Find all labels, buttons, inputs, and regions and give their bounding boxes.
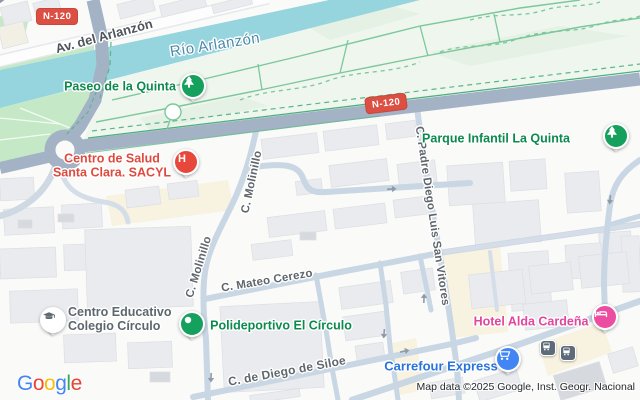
centro-educativo-pin[interactable] xyxy=(40,307,66,339)
poi-label-polideportivo[interactable]: Polideportivo El Círculo xyxy=(210,319,352,333)
poi-label-paseo-quinta[interactable]: Paseo de la Quinta xyxy=(64,80,176,94)
poi-label-parque-infantil[interactable]: Parque Infantil La Quinta xyxy=(422,132,570,146)
graduation-cap-icon xyxy=(42,309,56,323)
bed-icon xyxy=(594,306,608,320)
google-logo[interactable]: Google xyxy=(17,372,82,396)
bus-glyph-icon xyxy=(561,346,572,357)
poi-label-hotel-alda[interactable]: Hotel Alda Cardeña xyxy=(474,315,589,329)
poi-label-centro-salud[interactable]: Centro de Salud Santa Clara. SACYL xyxy=(53,153,171,180)
logo-letter: g xyxy=(55,372,66,395)
bus-glyph-icon xyxy=(541,341,552,352)
logo-letter: o xyxy=(44,372,55,395)
bus-stop-icon[interactable] xyxy=(540,340,556,356)
logo-letter: o xyxy=(33,372,44,395)
parque-infantil-pin[interactable] xyxy=(603,123,629,155)
svg-text:H: H xyxy=(178,153,186,165)
tree-icon xyxy=(605,125,619,139)
logo-letter: e xyxy=(71,372,82,395)
logo-letter: G xyxy=(17,372,33,395)
route-badge-n120-nw: N-120 xyxy=(37,9,77,24)
poi-label-centro-educativo[interactable]: Centro Educativo Colegio Círculo xyxy=(68,306,172,333)
hospital-h-icon: H xyxy=(175,151,189,165)
map-viewport[interactable]: N-120 N-120 Av. del Arlanzón Río Arlanzó… xyxy=(0,0,640,400)
poi-label-line: Colegio Círculo xyxy=(68,319,160,333)
centro-salud-pin[interactable]: H xyxy=(173,149,199,181)
hotel-alda-pin[interactable] xyxy=(592,304,618,336)
poi-label-carrefour[interactable]: Carrefour Express xyxy=(384,359,497,373)
paseo-quinta-pin[interactable] xyxy=(180,73,206,105)
bus-stop-icon[interactable] xyxy=(560,345,576,361)
poi-label-line: Centro de Salud xyxy=(64,152,160,166)
polideportivo-pin[interactable] xyxy=(179,311,205,343)
dot-icon xyxy=(181,313,195,327)
map-attribution: Map data ©2025 Google, Inst. Geogr. Naci… xyxy=(417,381,635,393)
poi-label-line: Santa Clara. SACYL xyxy=(53,165,171,179)
tree-icon xyxy=(182,75,196,89)
shopping-cart-icon xyxy=(497,348,511,362)
carrefour-pin[interactable] xyxy=(495,346,521,378)
poi-label-line: Centro Educativo xyxy=(68,305,172,319)
